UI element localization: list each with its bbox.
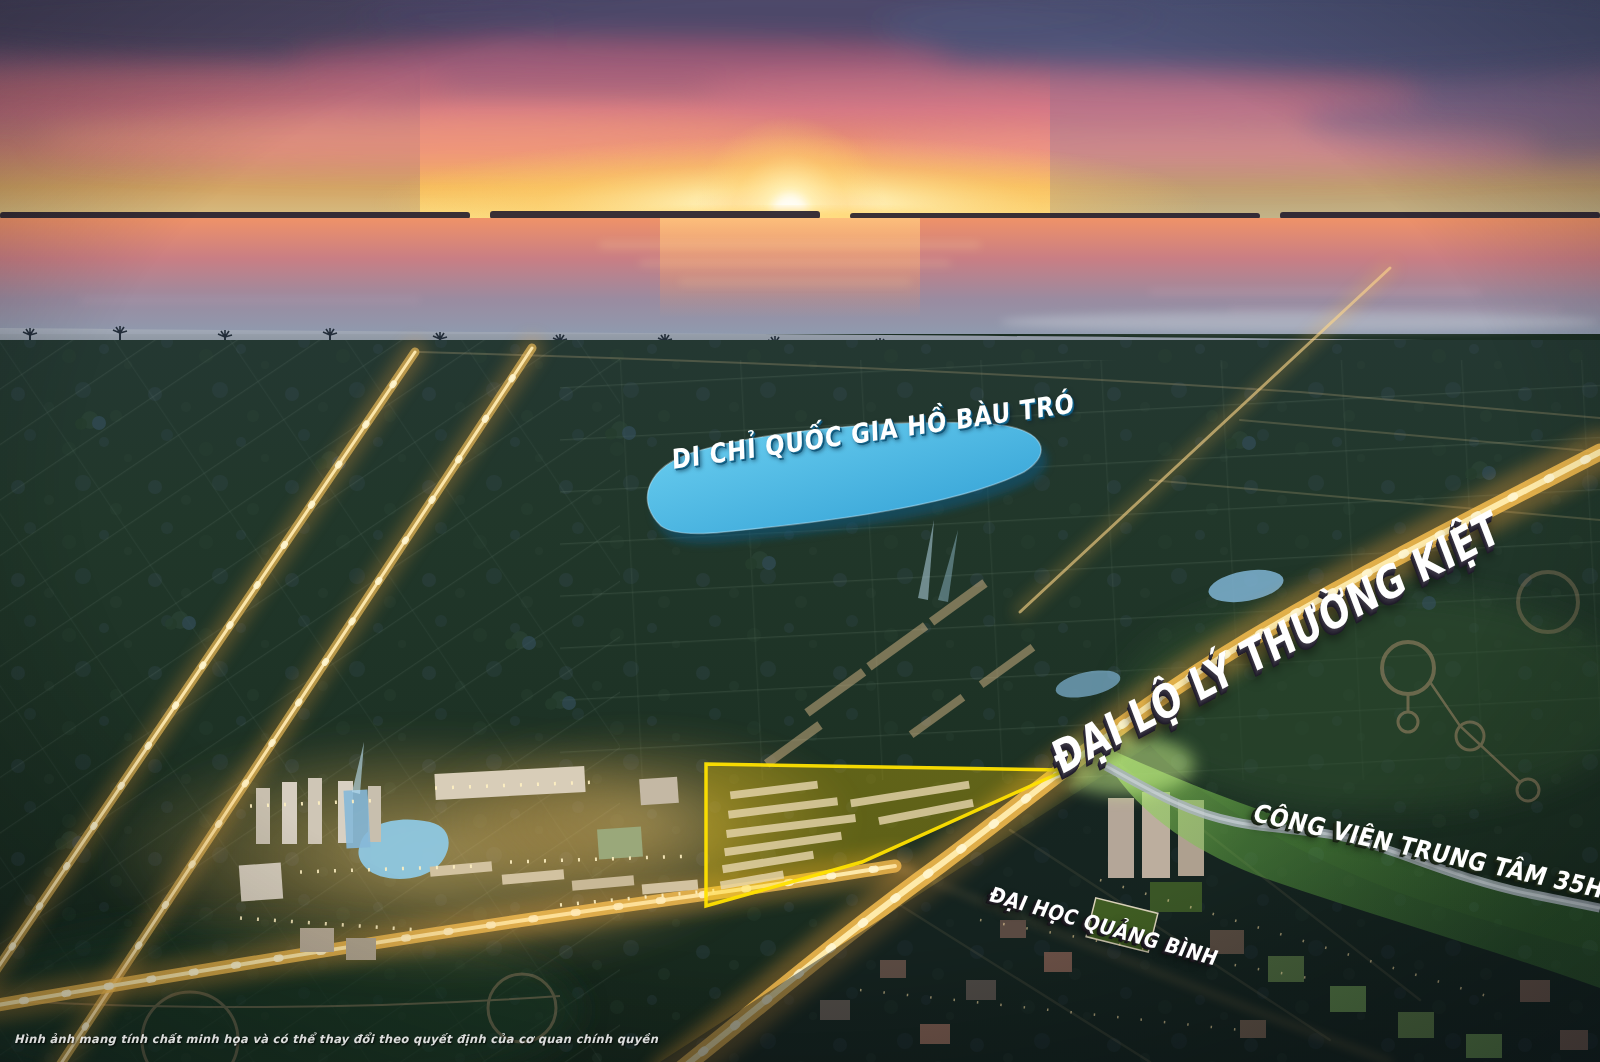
masterplan-render: DI CHỈ QUỐC GIA HỒ BÀU TRÓ ĐẠI LỘ LÝ THƯ…	[0, 0, 1600, 1062]
scene-artwork	[0, 0, 1600, 1062]
disclaimer-text: Hình ảnh mang tính chất minh họa và có t…	[14, 1034, 658, 1046]
vignette	[0, 0, 1600, 1062]
